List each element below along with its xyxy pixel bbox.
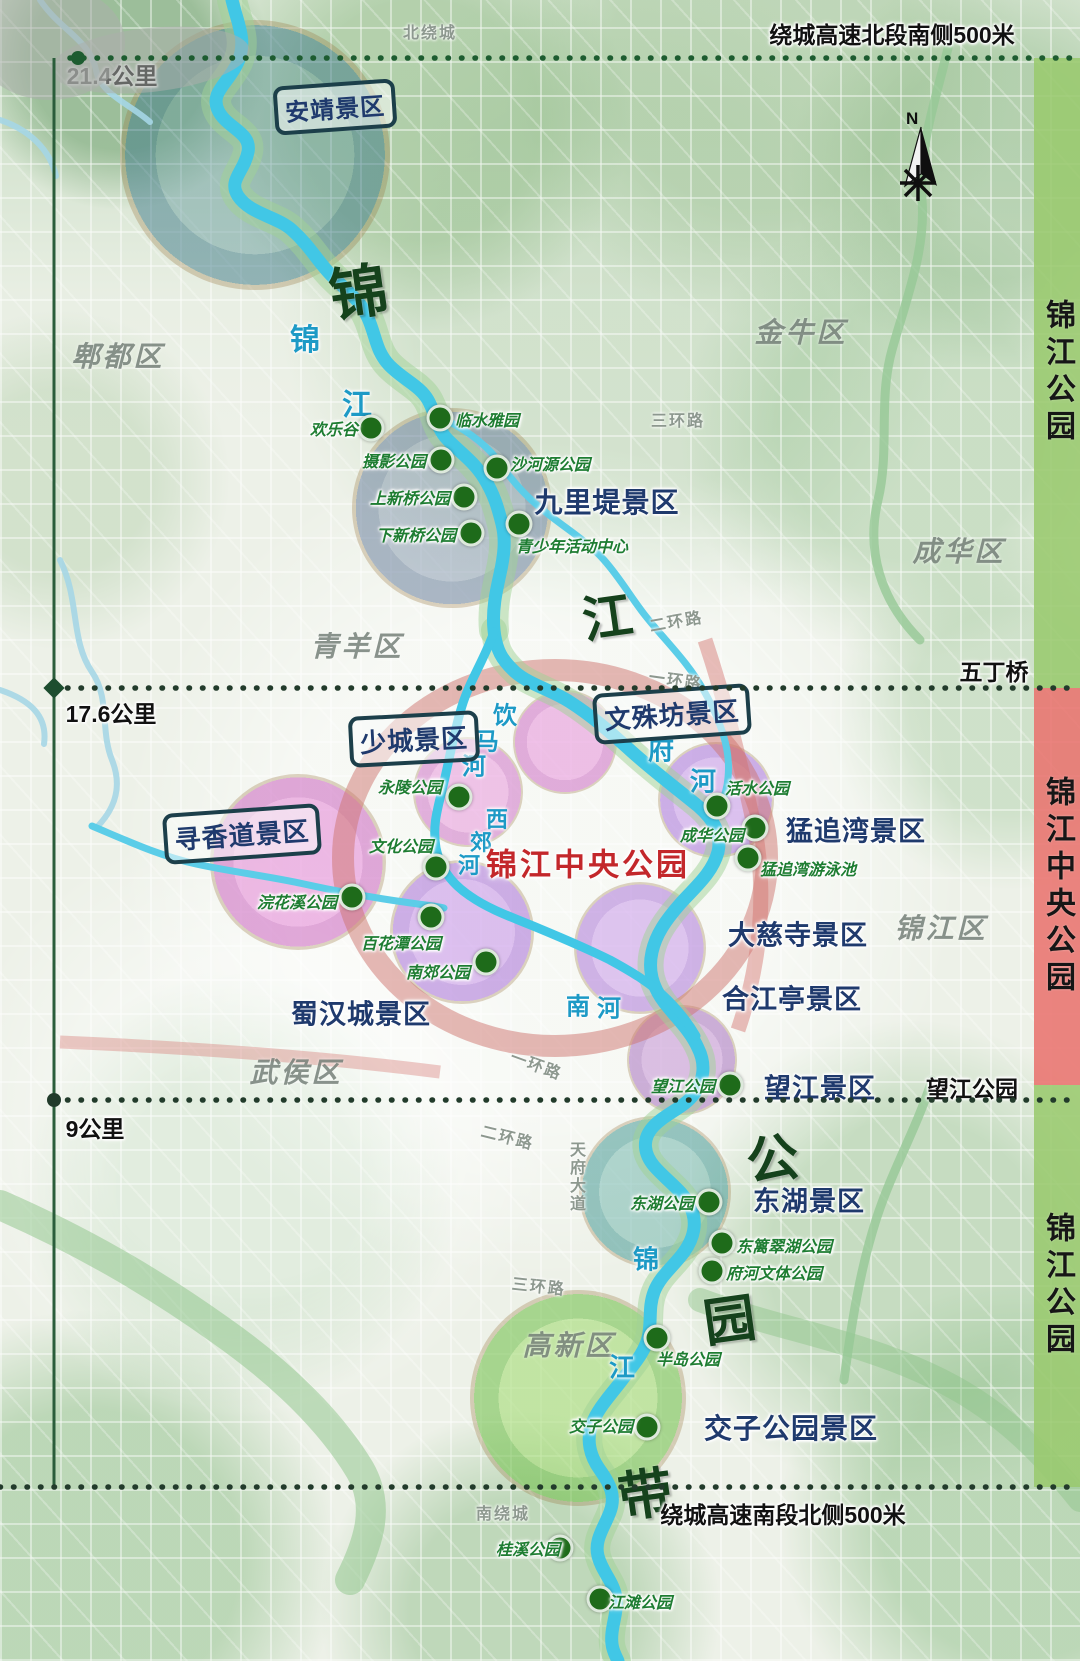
red-band-sw	[60, 1042, 440, 1072]
sidebar-jinjiang-park-south: 锦江公园	[1034, 1085, 1080, 1487]
jinjiang-river	[92, 0, 729, 1661]
sidebar-jinjiang-park-north: 锦江公园	[1034, 58, 1080, 688]
sidebar-label: 锦江公园	[1035, 299, 1079, 447]
river-corridor	[216, 0, 719, 1661]
side-canals	[0, 0, 150, 828]
map-canvas: N 锦江公园 锦江中央公园 锦江公园 郫都区金牛区成华区青羊区武侯区锦江区高新区…	[0, 0, 1080, 1661]
sidebar-label: 锦江公园	[1035, 1212, 1079, 1360]
sidebar-jinjiang-central-park: 锦江中央公园	[1034, 688, 1080, 1085]
huanhuaxi-inflow	[92, 826, 444, 908]
greenbelt-strokes	[0, 30, 1080, 1580]
river-and-road-graphics: N	[0, 0, 1080, 1661]
sidebar-label: 锦江中央公园	[1035, 776, 1079, 998]
svg-text:N: N	[906, 109, 918, 128]
